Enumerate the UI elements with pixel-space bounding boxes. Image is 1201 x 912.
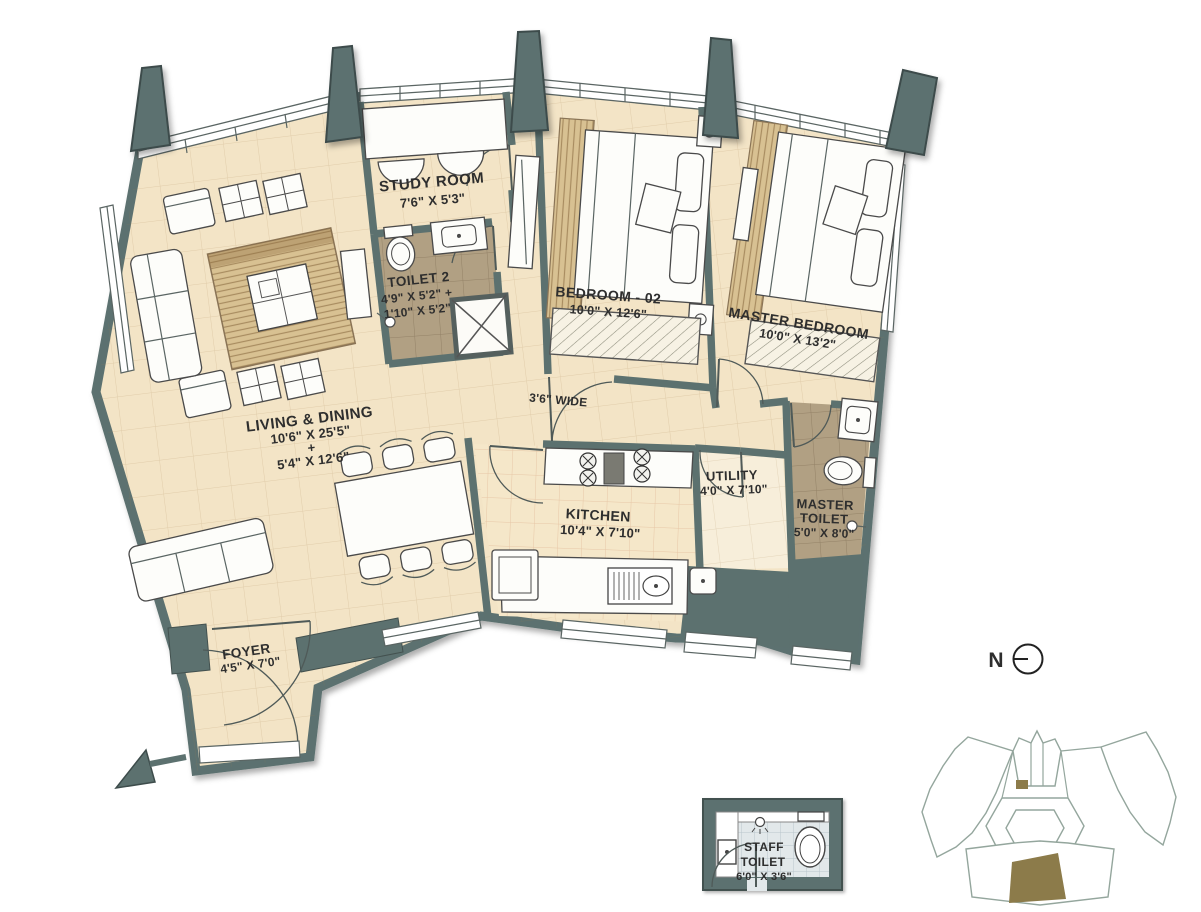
key-plan-top-block <box>1013 731 1061 786</box>
staff-toilet-label-1: STAFF <box>744 840 784 854</box>
duct-shaft <box>452 295 511 357</box>
pillow <box>669 224 699 284</box>
column <box>703 38 738 138</box>
column <box>511 31 548 132</box>
study-desk <box>362 99 507 159</box>
floorplan-drawing: STUDY ROOM 7'6" X 5'3" TOILET 2 4'9" X 5… <box>0 0 1201 912</box>
pouffe <box>263 173 307 214</box>
staff-wc <box>795 812 825 867</box>
hob <box>580 449 650 486</box>
pouffe <box>237 364 281 405</box>
foyer-wall-stub <box>168 624 210 674</box>
floorplan-page: { "title": "Apartment unit floor plan", … <box>0 0 1201 912</box>
entrance-arrow <box>116 750 186 788</box>
column <box>326 46 362 142</box>
north-label: N <box>988 649 1003 672</box>
utility-size: 4'0" X 7'10" <box>700 482 768 498</box>
key-plan-right-wing <box>1101 732 1176 845</box>
pouffe <box>281 358 325 399</box>
kitchen-sink <box>608 568 672 604</box>
staff-toilet-label-2: TOILET <box>741 855 786 869</box>
bedroom02-furniture <box>544 106 727 365</box>
key-plan <box>922 731 1176 905</box>
staff-toilet-size: 6'0" X 3'6" <box>736 871 792 883</box>
column <box>131 66 170 151</box>
master-basin <box>838 398 878 442</box>
utility-fixtures <box>690 568 716 594</box>
utility-label: UTILITY <box>706 467 758 484</box>
pouffe <box>219 180 263 221</box>
staff-toilet-plan: STAFF TOILET 6'0" X 3'6" <box>703 799 842 891</box>
master-toilet-label-2: TOILET <box>800 510 849 527</box>
master-toilet-size: 5'0" X 8'0" <box>794 525 855 541</box>
column <box>886 70 937 155</box>
living-rug <box>208 228 356 370</box>
basin-toilet2 <box>430 217 487 254</box>
key-plan-unit-highlight-small <box>1016 780 1028 789</box>
north-indicator: N <box>988 645 1042 674</box>
